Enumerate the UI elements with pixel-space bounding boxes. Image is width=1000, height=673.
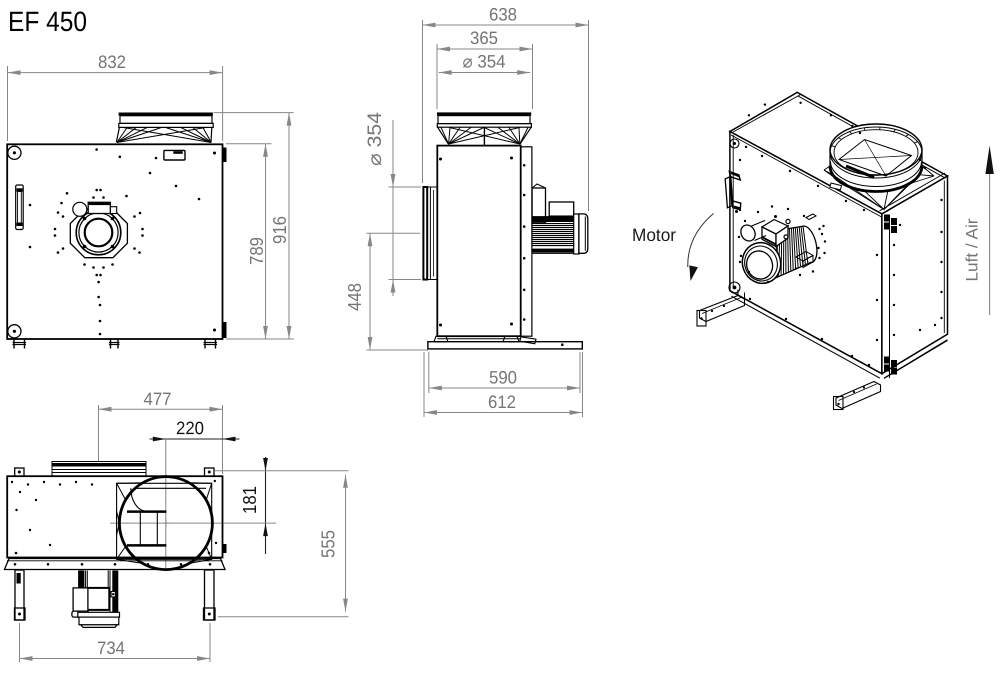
svg-text:220: 220 (176, 418, 204, 438)
svg-text:Motor: Motor (632, 225, 676, 245)
svg-text:EF 450: EF 450 (8, 6, 87, 37)
svg-text:612: 612 (488, 392, 516, 412)
svg-text:477: 477 (143, 389, 171, 409)
svg-text:365: 365 (470, 28, 498, 48)
svg-text:832: 832 (98, 52, 126, 72)
svg-text:734: 734 (97, 638, 125, 658)
svg-text:638: 638 (489, 4, 517, 24)
svg-text:Luft / Air: Luft / Air (963, 218, 982, 281)
svg-text:448: 448 (345, 283, 365, 311)
svg-text:590: 590 (489, 367, 517, 387)
svg-text:181: 181 (240, 486, 260, 514)
svg-text:916: 916 (270, 216, 290, 244)
svg-text:⌀ 354: ⌀ 354 (365, 112, 386, 166)
svg-text:⌀ 354: ⌀ 354 (462, 51, 505, 71)
svg-text:789: 789 (247, 237, 267, 265)
svg-text:555: 555 (319, 530, 339, 558)
